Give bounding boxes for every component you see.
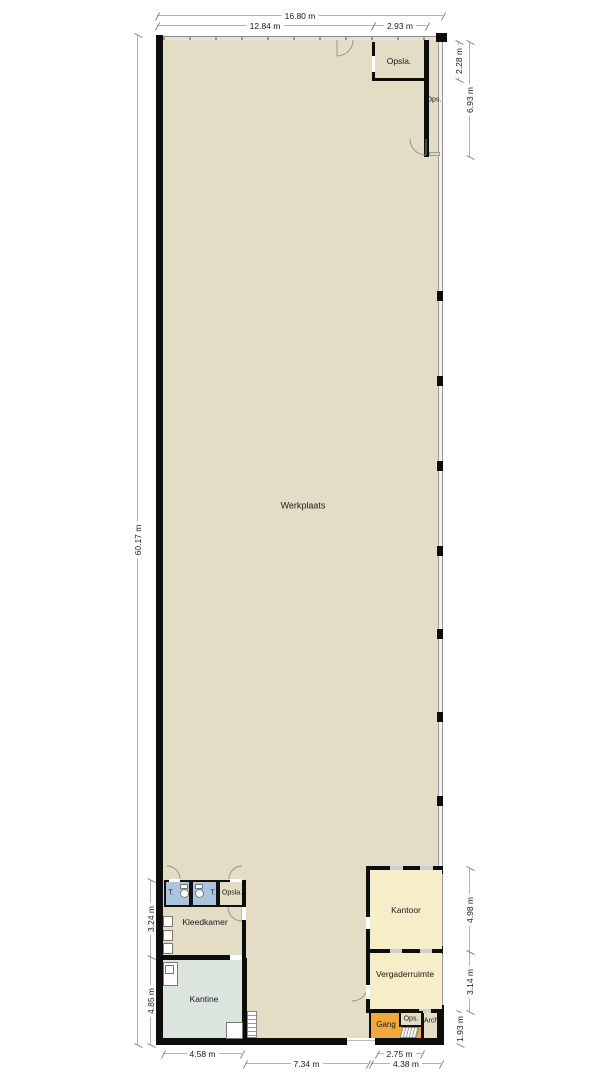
dim-label: 4.98 m [465,894,475,926]
kantoor-top-window [420,866,433,870]
locker-fixture [163,930,173,941]
column-marker [437,796,443,806]
stairs-gang [400,1027,420,1038]
dim-top-opslag: 2.93 m [373,25,427,26]
room-label-archief: Arch. [424,1018,440,1025]
kantoor-left-gap [366,917,370,929]
toilet-fixture-icon [180,889,189,898]
dim-bottom-kantine: 4.58 m [163,1053,242,1054]
kantoor-top-window [390,866,403,870]
dim-label: 4.38 m [390,1059,422,1069]
dim-label: 2.75 m [384,1049,416,1059]
door-arc-icon [229,866,242,879]
floor-plan: Opsla. Ops. T. T. Opsla. Kleedkamer Kant… [0,0,607,1080]
dim-right-ops: 6.93 m [469,42,470,157]
bottom-wall [156,1038,443,1045]
dim-top-main: 12.84 m [157,25,373,26]
room-label-toilet-left: T. [168,890,173,897]
column-marker [437,712,443,722]
dim-label: 4.58 m [187,1049,219,1059]
locker-fixture [163,916,173,927]
room-label-werkplaats: Werkplaats [281,502,326,511]
kleedkamer-door-gap [242,907,246,920]
column-marker [437,376,443,386]
dim-label: 3.14 m [465,966,475,998]
ops-corridor-sill [429,152,440,156]
opslag-mid-door-gap [230,879,242,882]
stairs-kantine [247,1011,257,1038]
dim-right-kantoor: 4.98 m [469,868,470,952]
column-marker [437,546,443,556]
left-wall [156,35,163,1045]
door-arc-icon [337,40,353,56]
room-vergaderruimte [368,953,442,1009]
room-label-toilet-right: T. [210,890,215,897]
dim-bottom-werkplaats: 7.34 m [245,1063,368,1064]
dim-right-opslag: 2.28 m [458,42,459,80]
toilet-fixture-icon [195,889,204,898]
dim-label: 3.24 m [146,903,156,935]
opslag-top-bottom-wall [372,78,429,81]
locker-fixture [163,943,173,954]
dim-left-kleedkamer: 3.24 m [150,880,151,957]
right-wall [438,42,443,1005]
room-label-kantoor: Kantoor [391,906,421,915]
dim-label: 12.84 m [247,21,284,31]
vergader-left-gap [366,985,370,999]
dim-label: 1.93 m [455,1013,465,1045]
dim-bottom-gang: 2.75 m [377,1053,422,1054]
dim-label: 6.93 m [465,84,475,116]
dim-label: 2.93 m [384,21,416,31]
room-label-kleedkamer: Kleedkamer [182,918,227,927]
door-arc-icon [410,139,426,155]
dim-label: 7.34 m [291,1059,323,1069]
dim-label: 60.17 m [133,522,143,559]
vergader-left-wall [366,953,370,1013]
dim-label: 2.28 m [454,45,464,77]
column-marker [437,291,443,301]
dim-label: 16.80 m [282,11,319,21]
room-label-opslag-mid: Opsla. [222,890,242,897]
opslag-top-door-gap [372,56,375,72]
dim-left-total: 60.17 m [137,35,138,1045]
dim-label: 4.85 m [146,985,156,1017]
room-label-ops-bottom: Ops. [404,1016,419,1023]
top-right-corner [436,33,447,42]
room-label-ops-top: Ops. [427,97,442,104]
sink-fixture [165,965,174,974]
door-arc-icon [228,907,242,921]
dim-bottom-entree: 4.38 m [371,1063,441,1064]
room-label-gang: Gang [376,1021,396,1029]
cabinet-fixture [226,1022,243,1039]
kantoor-left-wall [366,866,370,953]
top-wall [163,36,437,40]
dim-right-vergaderruimte: 3.14 m [469,952,470,1012]
toilet-door-gap [169,879,180,882]
dim-left-kantine: 4.85 m [150,957,151,1045]
room-label-vergaderruimte: Vergaderruimte [376,970,434,979]
dim-right-gang: 1.93 m [459,1012,460,1045]
room-label-kantine: Kantine [190,995,219,1004]
column-marker [437,461,443,471]
column-marker [437,629,443,639]
entrance-threshold [347,1040,375,1041]
dim-top-total: 16.80 m [157,15,443,16]
room-label-opslag-top: Opsla. [387,57,412,66]
gang-left-wall [369,1013,371,1038]
door-arc-icon [167,866,180,879]
